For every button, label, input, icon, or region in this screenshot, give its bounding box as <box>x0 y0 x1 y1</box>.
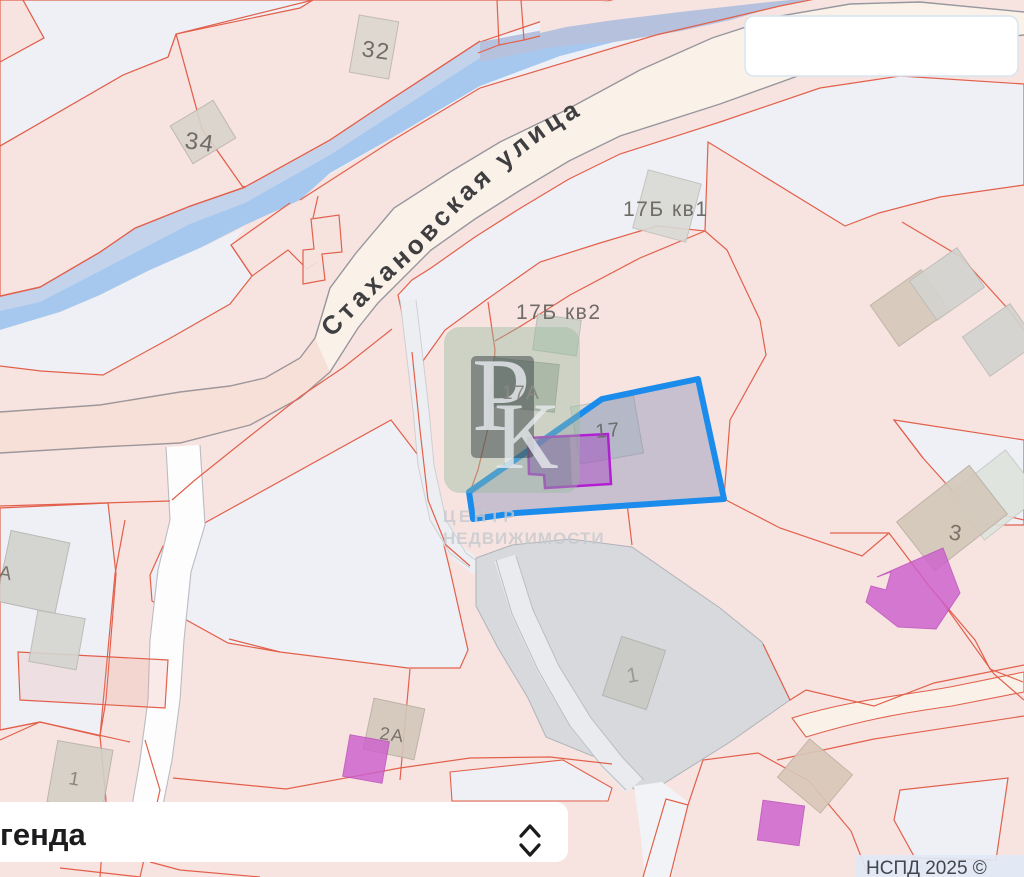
svg-text:НСПД 2025 ©: НСПД 2025 © <box>866 858 987 877</box>
svg-text:32: 32 <box>360 35 392 65</box>
svg-text:34: 34 <box>183 127 216 158</box>
svg-text:ЦЕНТР: ЦЕНТР <box>443 507 518 526</box>
svg-text:генда: генда <box>0 817 87 852</box>
svg-text:17: 17 <box>595 419 622 443</box>
svg-text:17А: 17А <box>502 383 540 404</box>
svg-text:17Б кв1: 17Б кв1 <box>623 198 709 221</box>
svg-text:2А: 2А <box>378 723 406 746</box>
svg-text:17Б кв2: 17Б кв2 <box>516 301 602 324</box>
svg-text:НЕДВИЖИМОСТИ: НЕДВИЖИМОСТИ <box>443 529 605 548</box>
